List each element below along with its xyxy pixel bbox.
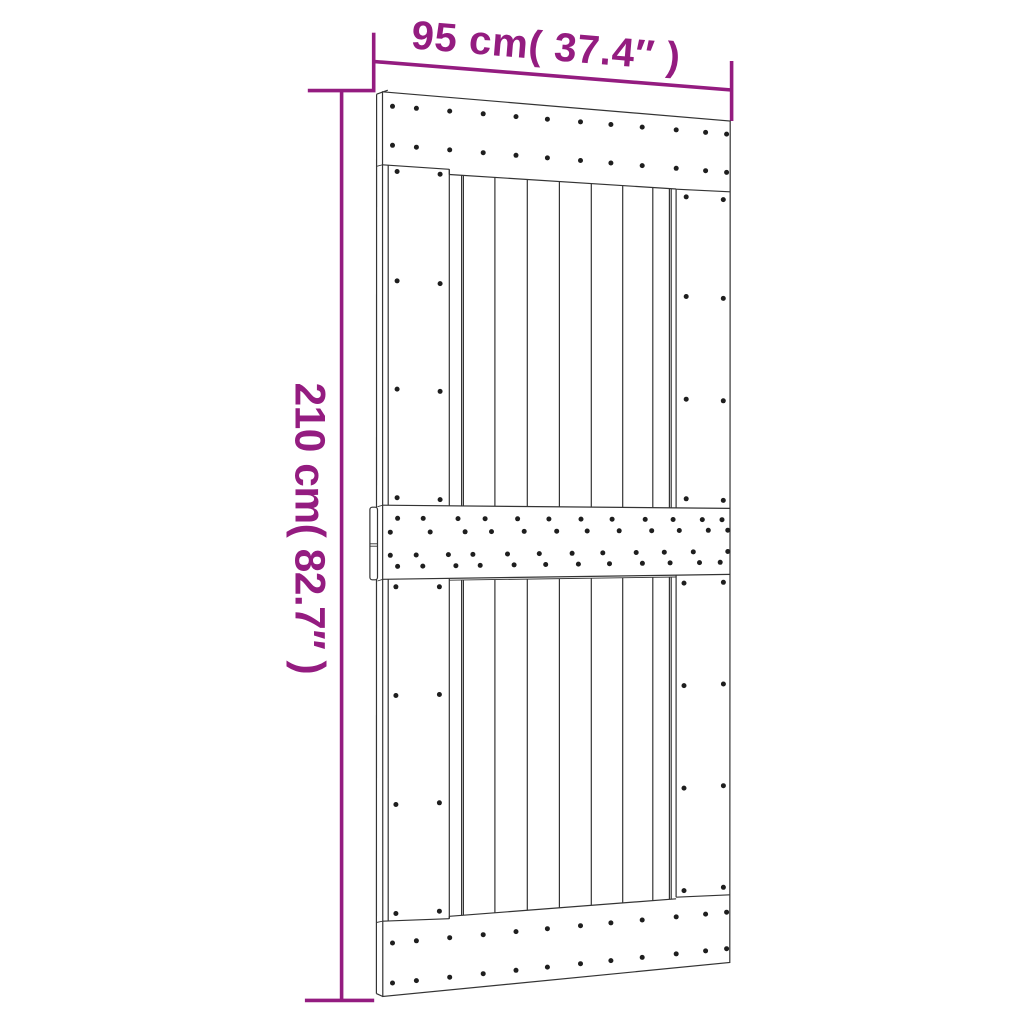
svg-text:210 cm( 82.7″ ): 210 cm( 82.7″ ) bbox=[285, 383, 332, 675]
